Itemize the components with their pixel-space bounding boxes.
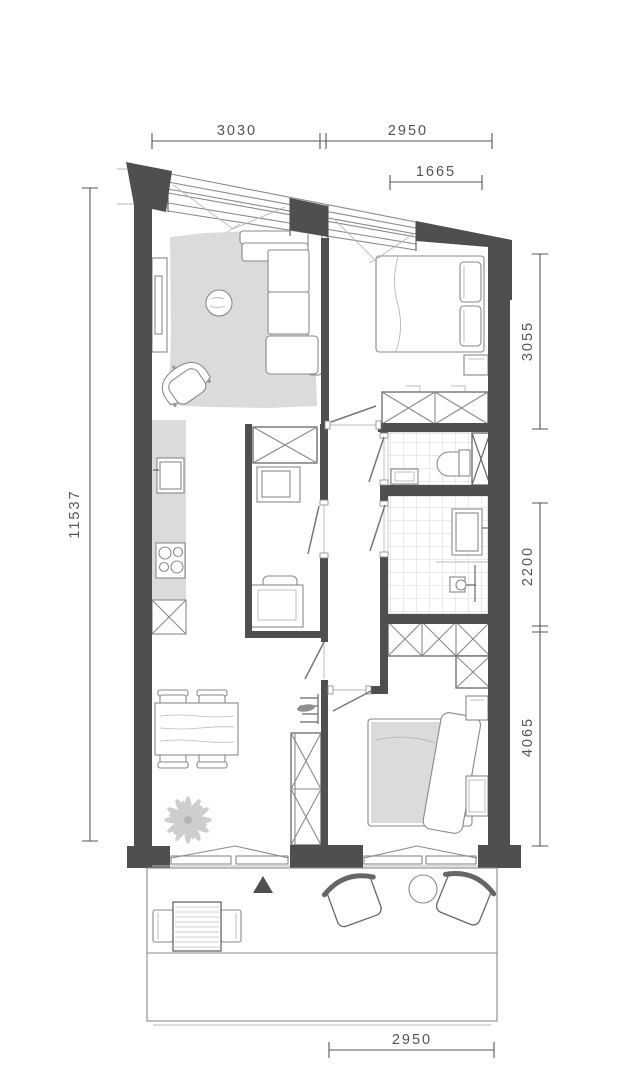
dim-right-upper-label: 3055: [520, 321, 536, 361]
wall-bottom-right-pad: [478, 845, 521, 868]
kitchen: [152, 420, 186, 634]
cooktop: [156, 543, 185, 578]
bathroom: [388, 496, 488, 614]
service-shaft: [472, 433, 490, 485]
living-room: [152, 231, 322, 412]
study-room: [250, 427, 317, 627]
bedroom1-door: [331, 406, 376, 422]
hand-basin: [391, 469, 418, 484]
floor-plan-page: 3030 2950 1665 11537 3055 2200 4065 2950: [0, 0, 625, 1092]
lounge-chair-1: [322, 869, 386, 929]
wall-bottom-left-pad: [127, 846, 170, 868]
bed-1: [376, 256, 484, 352]
bedroom2-wardrobe: [388, 622, 490, 688]
toilet-door: [369, 437, 384, 482]
floor-plan-svg: 3030 2950 1665 11537 3055 2200 4065 2950: [0, 0, 625, 1092]
entrance-marker: [253, 876, 273, 893]
lounge-chair-2: [432, 867, 497, 928]
bedroom1-wardrobe: [382, 386, 488, 424]
plant: [164, 796, 212, 844]
hall: [291, 694, 321, 845]
washer-cabinet: [257, 467, 300, 502]
terrace: [147, 867, 497, 1025]
wall-bottom-center-pad: [290, 845, 363, 868]
dining-area: [155, 690, 238, 844]
terrace-table-set: [153, 902, 241, 951]
nightstand-2a: [466, 696, 488, 720]
terrace-side-table: [409, 875, 437, 903]
bed-2: [368, 711, 482, 834]
tv-cabinet: [152, 258, 167, 352]
coffee-table: [206, 290, 232, 316]
hall-wardrobe: [291, 733, 321, 845]
wall-left: [134, 202, 152, 848]
dim-top-inset-label: 1665: [416, 164, 456, 180]
dining-table: [155, 703, 238, 755]
bedroom-1: [376, 256, 488, 424]
dim-right-lower-label: 4065: [520, 717, 536, 757]
desk-and-chair: [250, 576, 303, 627]
nightstand-1: [464, 355, 488, 375]
bathroom-door: [370, 505, 385, 551]
dim-bottom-label: 2950: [392, 1032, 432, 1048]
bedroom2-door: [333, 691, 371, 711]
dim-top-right-label: 2950: [388, 123, 428, 139]
toilet: [437, 450, 470, 476]
nightstand-2b: [466, 776, 488, 816]
coat-hooks: [297, 694, 318, 724]
dim-left-label: 11537: [67, 489, 83, 538]
kitchen-sink: [153, 458, 184, 493]
dim-right-middle-label: 2200: [520, 546, 536, 586]
hall-door: [305, 642, 324, 679]
study-door: [308, 506, 319, 554]
toilet-room: [388, 433, 490, 485]
study-wardrobe: [253, 427, 317, 463]
wall-right: [488, 298, 510, 846]
kitchen-base-cabinet: [152, 600, 186, 634]
dim-top-left-label: 3030: [217, 123, 257, 139]
